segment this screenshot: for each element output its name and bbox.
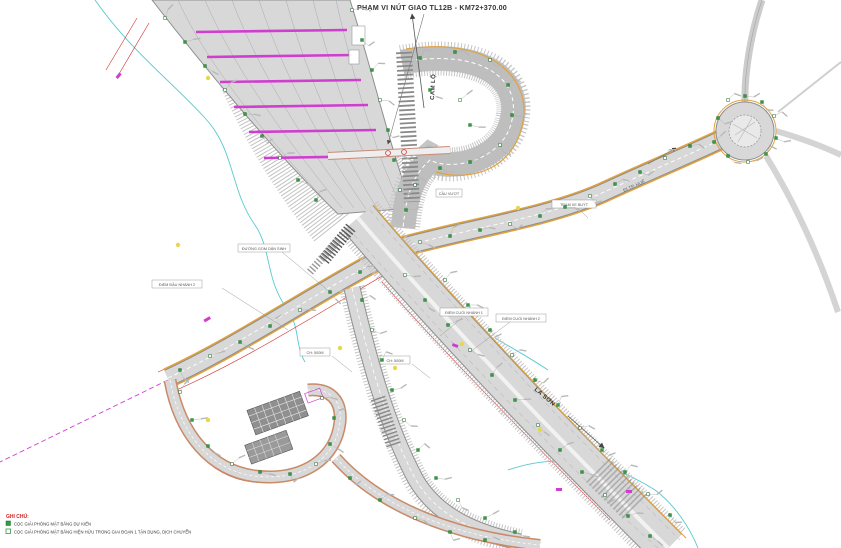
survey-marker (279, 157, 282, 160)
roundabout-leg-southeast (766, 156, 838, 312)
title-leader-arrow (388, 14, 424, 144)
survey-marker (579, 427, 582, 430)
red-line-topleft-1 (106, 18, 137, 70)
legend: GHI CHÚ: CỌC GIẢI PHÓNG MẶT BẰNG DỰ KIẾN… (6, 513, 191, 535)
survey-marker (333, 417, 336, 420)
survey-marker (744, 95, 747, 98)
survey-marker (717, 117, 720, 120)
marker-micro-label (238, 455, 245, 459)
hook-uturn-ramp (402, 47, 524, 228)
survey-marker (689, 145, 692, 148)
survey-marker (511, 354, 514, 357)
survey-marker (484, 517, 487, 520)
marker-micro-label (400, 384, 407, 389)
legend-heading: GHI CHÚ: (6, 513, 29, 520)
survey-marker (209, 355, 212, 358)
survey-marker (387, 129, 390, 132)
roundabout (714, 0, 841, 312)
survey-marker (469, 124, 472, 127)
roundabout-leg-north (745, 0, 762, 104)
survey-marker (191, 419, 194, 422)
survey-marker (419, 241, 422, 244)
survey-marker (601, 449, 604, 452)
survey-marker (457, 499, 460, 502)
survey-marker (624, 471, 627, 474)
survey-marker (557, 404, 560, 407)
interchange-plan-page: ĐƯỜNG GOM DÂN SINH ĐIỂM ĐẦU NHÁNH 2 ĐIỂM… (0, 0, 841, 548)
plate-cau-vuot: CẦU VƯỢT (436, 189, 462, 197)
survey-marker (747, 161, 750, 164)
marker-micro-label (369, 295, 376, 300)
marker-micro-label (675, 522, 682, 524)
marker-micro-label (467, 90, 473, 95)
survey-marker (361, 299, 364, 302)
survey-marker (224, 89, 227, 92)
marker-micro-label (380, 331, 387, 334)
survey-marker (489, 329, 492, 332)
drawing-title: PHẠM VI NÚT GIAO TL12B - KM72+370.00 (357, 3, 507, 12)
roundabout-faint-road (778, 62, 841, 112)
survey-marker (414, 184, 417, 187)
survey-marker (469, 161, 472, 164)
marker-micro-label (337, 448, 344, 453)
survey-marker (371, 69, 374, 72)
survey-marker (539, 215, 542, 218)
survey-marker (231, 463, 234, 466)
survey-marker (419, 57, 422, 60)
marker-micro-label (588, 425, 595, 430)
survey-marker (403, 419, 406, 422)
hook-casing-edge (402, 59, 513, 228)
marker-micro-label (247, 346, 254, 350)
survey-marker (604, 494, 607, 497)
survey-marker (507, 84, 510, 87)
survey-marker (499, 144, 502, 147)
survey-marker (297, 179, 300, 182)
survey-marker (727, 155, 730, 158)
survey-marker (537, 424, 540, 427)
survey-marker (467, 304, 470, 307)
survey-marker (207, 445, 210, 448)
survey-marker (359, 271, 362, 274)
roundabout-leg-east (776, 131, 841, 155)
plate-diem-cuoi-1-label: ĐIỂM CUỐI NHÁNH 1 (445, 310, 483, 315)
interchange-plan-drawing: ĐƯỜNG GOM DÂN SINH ĐIỂM ĐẦU NHÁNH 2 ĐIỂM… (0, 0, 841, 548)
toll-building-2 (349, 50, 359, 64)
survey-marker (449, 235, 452, 238)
survey-marker (239, 341, 242, 344)
marker-micro-label (392, 135, 399, 138)
survey-marker (534, 379, 537, 382)
building-grid-2 (245, 430, 293, 464)
survey-marker (669, 514, 672, 517)
survey-marker (261, 135, 264, 138)
legend-swatch-open (6, 529, 11, 534)
marker-micro-label (519, 349, 526, 351)
survey-marker (179, 391, 182, 394)
survey-marker (727, 99, 730, 102)
marker-micro-label (766, 109, 773, 111)
marker-micro-label (479, 126, 486, 128)
survey-marker (589, 195, 592, 198)
survey-marker (404, 274, 407, 277)
survey-marker (564, 206, 567, 209)
marker-micro-label (445, 477, 452, 480)
plate-cau-vuot-label: CẦU VƯỢT (439, 192, 460, 196)
survey-marker (424, 299, 427, 302)
plate-ch500-a-label: CH: 500M (306, 351, 323, 355)
toll-building-1 (352, 26, 365, 45)
survey-marker (773, 115, 776, 118)
marker-micro-label (387, 494, 394, 496)
marker-micro-label (754, 93, 761, 98)
survey-marker (414, 517, 417, 520)
survey-marker (204, 65, 207, 68)
marker-micro-label (378, 63, 385, 65)
survey-marker (289, 473, 292, 476)
survey-marker (559, 449, 562, 452)
survey-marker (351, 9, 354, 12)
survey-marker (649, 535, 652, 538)
survey-marker (491, 374, 494, 377)
marker-micro-label (386, 351, 393, 355)
mainline-southeast (348, 206, 686, 548)
marker-micro-label (524, 398, 531, 400)
survey-marker (713, 141, 716, 144)
survey-marker (381, 359, 384, 362)
red-line-topleft-2 (119, 23, 149, 74)
survey-marker (449, 531, 452, 534)
survey-marker (179, 369, 182, 372)
marker-micro-label (669, 149, 676, 150)
marker-micro-label (561, 395, 568, 397)
legend-item-1: CỌC GIẢI PHÓNG MẶT BẰNG DỰ KIẾN (14, 522, 91, 527)
survey-marker (321, 397, 324, 400)
survey-marker (361, 39, 364, 42)
survey-marker (489, 59, 492, 62)
marker-micro-label (609, 452, 616, 456)
survey-marker (435, 477, 438, 480)
survey-marker (329, 443, 332, 446)
survey-marker (775, 137, 778, 140)
survey-marker (639, 171, 642, 174)
survey-marker (315, 199, 318, 202)
survey-marker (459, 99, 462, 102)
survey-marker (509, 223, 512, 226)
survey-marker (299, 309, 302, 312)
survey-marker (371, 329, 374, 332)
magenta-boundary-dashed (0, 380, 168, 462)
survey-marker (349, 477, 352, 480)
survey-marker (417, 449, 420, 452)
survey-marker (514, 399, 517, 402)
survey-marker (379, 99, 382, 102)
survey-marker (761, 101, 764, 104)
survey-marker (647, 493, 650, 496)
marker-micro-label (411, 425, 418, 427)
marker-micro-label (450, 271, 457, 274)
plate-duong-gom-label: ĐƯỜNG GOM DÂN SINH (242, 246, 287, 251)
survey-marker (479, 229, 482, 232)
survey-marker (581, 471, 584, 474)
plate-ch500-b-label: CH: 500M (386, 359, 403, 363)
survey-marker (444, 279, 447, 282)
survey-marker (627, 515, 630, 518)
survey-marker (484, 539, 487, 542)
plate-diem-cuoi-2-label: ĐIỂM CUỐI NHÁNH 2 (502, 316, 540, 321)
marker-micro-label (368, 41, 375, 46)
marker-micro-label (784, 140, 791, 143)
survey-marker (469, 349, 472, 352)
marker-micro-label (782, 111, 788, 117)
toll-plaza-approach (152, 0, 412, 214)
survey-marker (511, 114, 514, 117)
survey-marker (514, 531, 517, 534)
plate-diem-dau-label: ĐIỂM ĐẦU NHÁNH 2 (159, 282, 195, 287)
survey-marker (315, 463, 318, 466)
survey-marker (405, 209, 408, 212)
survey-marker (164, 17, 167, 20)
marker-micro-label (493, 510, 500, 515)
survey-marker (391, 389, 394, 392)
legend-swatch-filled (6, 521, 11, 526)
legend-item-2: CỌC GIẢI PHÓNG MẶT BẰNG HIỆN HỮU TRONG G… (14, 530, 191, 535)
marker-micro-label (453, 538, 460, 541)
plate-ch500-a: CH: 500M (300, 348, 352, 372)
survey-marker (447, 324, 450, 327)
survey-marker (454, 51, 457, 54)
marker-micro-label (389, 100, 395, 105)
survey-marker (429, 89, 432, 92)
survey-marker (614, 183, 617, 186)
cam-lo-label: CAM LỘ (428, 74, 437, 100)
marker-micro-label (543, 377, 549, 383)
marker-micro-label (424, 443, 430, 449)
survey-marker (439, 167, 442, 170)
survey-marker (184, 41, 187, 44)
survey-marker (259, 471, 262, 474)
survey-marker (269, 325, 272, 328)
survey-marker (664, 157, 667, 160)
survey-marker (393, 159, 396, 162)
survey-marker (399, 189, 402, 192)
marker-micro-label (436, 96, 443, 99)
marker-micro-label (734, 93, 741, 97)
marker-micro-label (631, 464, 638, 467)
survey-marker (244, 113, 247, 116)
survey-marker (329, 291, 332, 294)
survey-marker (379, 499, 382, 502)
survey-marker (765, 153, 768, 156)
